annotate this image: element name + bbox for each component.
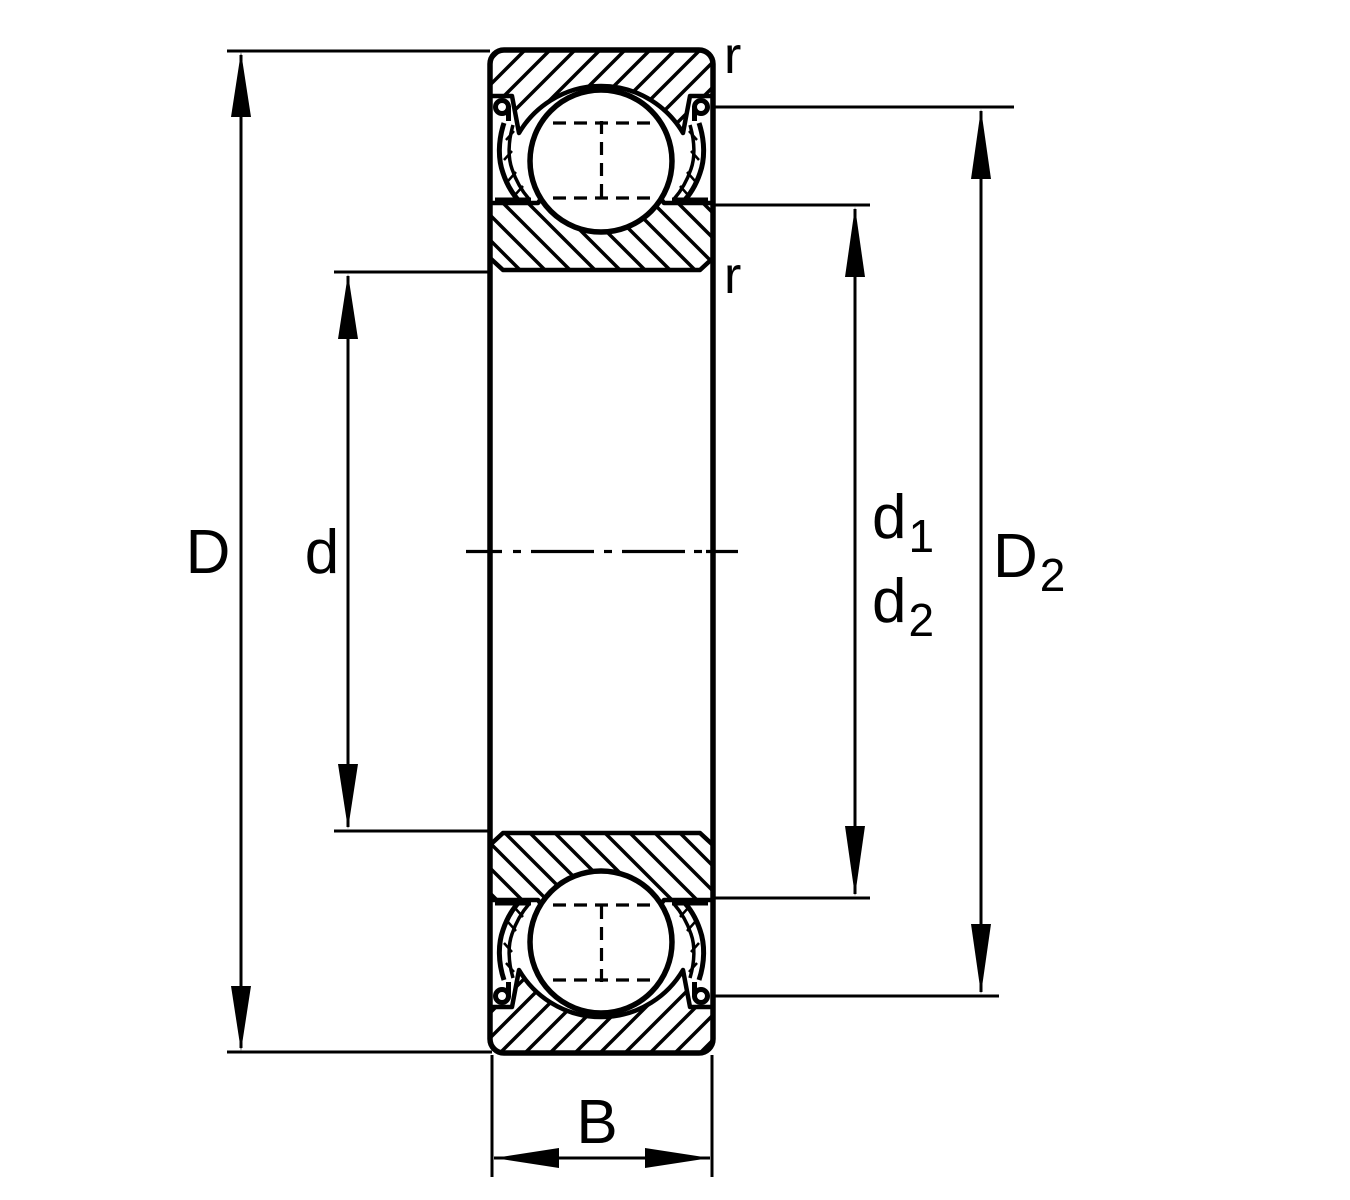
dim-label-r-inner: r [724,247,741,305]
dim-label-r-outer: r [724,27,741,85]
ball-bottom [530,871,672,1013]
bearing-diagram-svg: D d d1 d2 D2 B r r [0,0,1350,1200]
bearing-dimension-drawing: D d d1 d2 D2 B r r [0,0,1350,1200]
dim-label-D: D [186,518,231,587]
dim-label-B: B [576,1088,617,1157]
dim-label-d: d [305,518,339,587]
ball-top [530,90,672,232]
